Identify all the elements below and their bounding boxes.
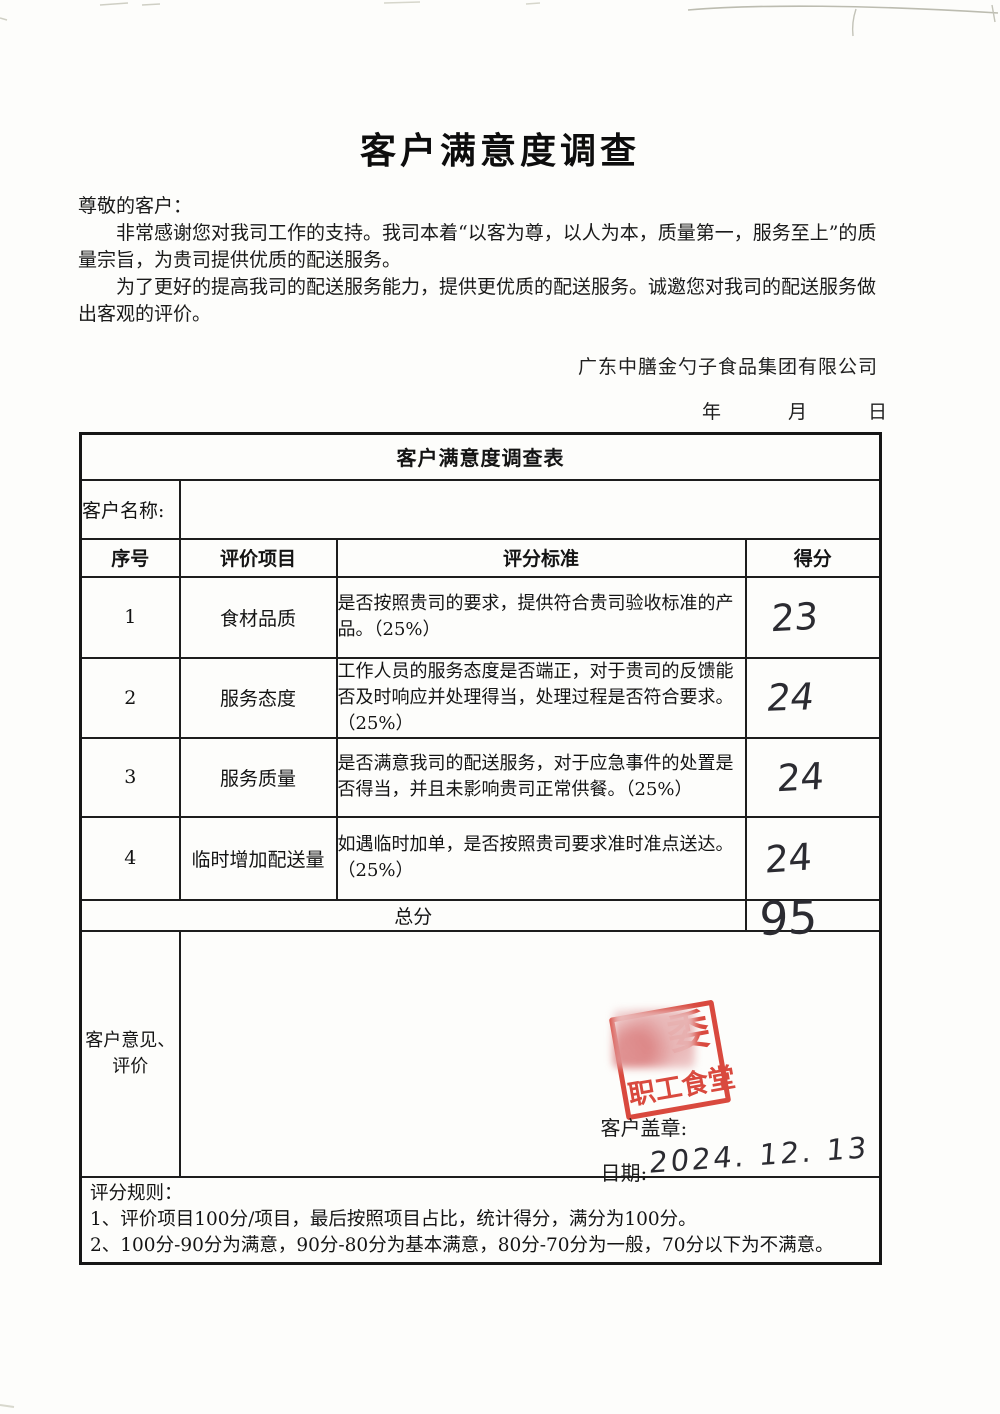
- month-label: 月: [788, 397, 807, 424]
- row1-item: 食材品质: [180, 577, 337, 658]
- row4-score-cell: 24: [746, 817, 881, 900]
- page-title: 客户满意度调查: [0, 122, 1000, 174]
- rules-cell: 评分规则： 1、评价项目100分/项目，最后按照项目占比，统计得分，满分为100…: [81, 1177, 881, 1264]
- row1-score-cell: 23: [746, 577, 881, 658]
- row3-criteria: 是否满意我司的配送服务，对于应急事件的处置是否得当，并且未影响贵司正常供餐。（2…: [337, 738, 746, 817]
- row4-no: 4: [81, 817, 180, 900]
- table-row: 3 服务质量 是否满意我司的配送服务，对于应急事件的处置是否得当，并且未影响贵司…: [81, 738, 881, 817]
- customer-name-field: [180, 480, 881, 539]
- rules-box: 评分规则： 1、评价项目100分/项目，最后按照项目占比，统计得分，满分为100…: [82, 1178, 879, 1262]
- year-label: 年: [702, 397, 721, 424]
- row3-no: 3: [81, 738, 180, 817]
- rule-item-1: 1、评价项目100分/项目，最后按照项目占比，统计得分，满分为100分。: [90, 1207, 871, 1233]
- comments-label-line1: 客户意见、: [82, 1028, 179, 1054]
- intro-text: 尊敬的客户： 非常感谢您对我司工作的支持。我司本着“以客为尊，以人为本，质量第一…: [78, 193, 882, 328]
- table-row: 1 食材品质 是否按照贵司的要求，提供符合贵司验收标准的产品。（25%） 23: [81, 577, 881, 658]
- total-score-cell: 95: [746, 900, 881, 931]
- row2-criteria: 工作人员的服务态度是否端正，对于贵司的反馈能否及时响应并处理得当，处理过程是否符…: [337, 658, 746, 738]
- row1-no: 1: [81, 577, 180, 658]
- intro-paragraph-1: 非常感谢您对我司工作的支持。我司本着“以客为尊，以人为本，质量第一，服务至上”的…: [78, 220, 882, 274]
- table-title-row: 客户满意度调查表: [81, 434, 881, 480]
- row2-score-cell: 24: [746, 658, 881, 738]
- salutation: 尊敬的客户：: [78, 193, 882, 220]
- rule-item-2: 2、100分-90分为满意，90分-80分为基本满意，80分-70分为一般，70…: [90, 1233, 871, 1259]
- row4-criteria: 如遇临时加单，是否按照贵司要求准时准点送达。（25%）: [337, 817, 746, 900]
- scanned-survey-page: 客户满意度调查 尊敬的客户： 非常感谢您对我司工作的支持。我司本着“以客为尊，以…: [0, 0, 1000, 1414]
- row3-score-handwritten: 24: [776, 757, 825, 797]
- row3-score-cell: 24: [746, 738, 881, 817]
- row2-no: 2: [81, 658, 180, 738]
- row1-criteria: 是否按照贵司的要求，提供符合贵司验收标准的产品。（25%）: [337, 577, 746, 658]
- company-name: 广东中膳金勺子食品集团有限公司: [78, 352, 878, 379]
- row2-item: 服务态度: [180, 658, 337, 738]
- table-header-row: 序号 评价项目 评分标准 得分: [81, 539, 881, 577]
- table-row: 2 服务态度 工作人员的服务态度是否端正，对于贵司的反馈能否及时响应并处理得当，…: [81, 658, 881, 738]
- stamp-caption: 客户盖章:: [601, 1112, 688, 1141]
- row2-score-handwritten: 24: [764, 678, 816, 717]
- header-criteria: 评分标准: [337, 539, 746, 577]
- comments-label-line2: 评价: [82, 1054, 179, 1080]
- total-score-handwritten: 95: [758, 893, 818, 941]
- table-row: 4 临时增加配送量 如遇临时加单，是否按照贵司要求准时准点送达。（25%） 24: [81, 817, 881, 900]
- form-title: 客户满意度调查表: [81, 434, 881, 480]
- header-item: 评价项目: [180, 539, 337, 577]
- survey-table: 客户满意度调查表 客户名称: 序号 评价项目 评分标准 得分 1 食材品质 是否…: [79, 432, 882, 1265]
- comments-label: 客户意见、 评价: [81, 931, 180, 1177]
- total-label: 总分: [81, 900, 746, 931]
- row1-score-handwritten: 23: [770, 597, 819, 637]
- intro-paragraph-2: 为了更好的提高我司的配送服务能力，提供更优质的配送服务。诚邀您对我司的配送服务做…: [78, 274, 882, 328]
- blank-date-line: 年 月 日: [0, 397, 1000, 421]
- comments-row: 客户意见、 评价 委 职工食堂 客户盖章: 日期: 2024. 12. 13: [81, 931, 881, 1177]
- row3-item: 服务质量: [180, 738, 337, 817]
- customer-name-row: 客户名称:: [81, 480, 881, 539]
- total-row: 总分 95: [81, 900, 881, 931]
- customer-name-label: 客户名称:: [81, 480, 180, 539]
- header-score: 得分: [746, 539, 881, 577]
- rules-row: 评分规则： 1、评价项目100分/项目，最后按照项目占比，统计得分，满分为100…: [81, 1177, 881, 1264]
- date-label: 日期:: [601, 1157, 648, 1186]
- scanner-artifact-top: [0, 0, 1000, 50]
- rules-heading: 评分规则：: [90, 1181, 871, 1207]
- row4-score-handwritten: 24: [764, 838, 812, 878]
- privacy-blur-patch: [613, 1010, 695, 1068]
- comments-area: 委 职工食堂 客户盖章: 日期: 2024. 12. 13: [180, 931, 881, 1177]
- header-no: 序号: [81, 539, 180, 577]
- row4-item: 临时增加配送量: [180, 817, 337, 900]
- scanner-artifact-bottom: [0, 1398, 30, 1412]
- day-label: 日: [868, 397, 887, 424]
